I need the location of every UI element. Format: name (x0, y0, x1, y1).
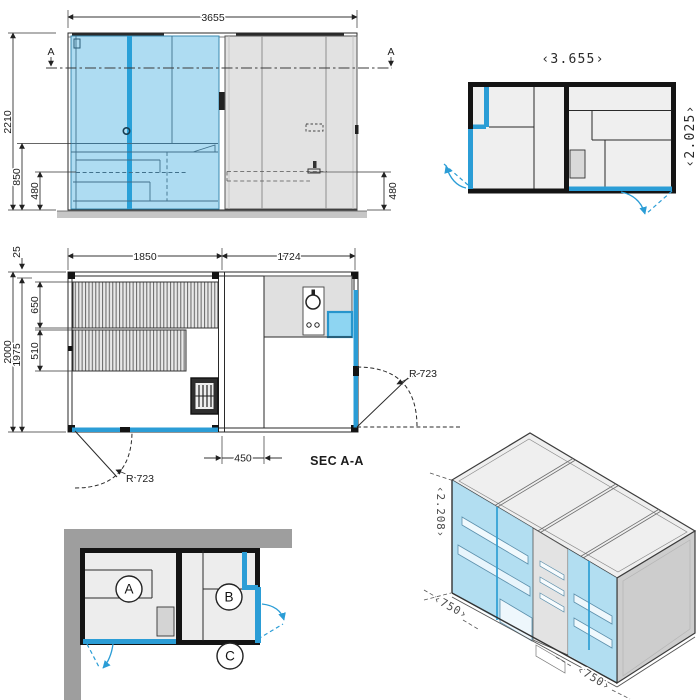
dim-screen-offset: 450 (234, 453, 252, 465)
room-c-label: C (225, 649, 235, 664)
dim-total-height: 2210 (2, 110, 14, 134)
dim-shower-width: 1724 (277, 251, 301, 263)
dim-inner-depth: 1975 (11, 343, 23, 367)
dim-lower-bench: 510 (29, 342, 41, 360)
vanity-counter (264, 276, 352, 337)
section-marker-right: A (387, 46, 394, 58)
technical-drawing-sheet: A A 3655 2210 850 480 480 ‹3.655 (0, 0, 700, 700)
glass-door-stile (127, 36, 132, 209)
dim-plan-width: ‹3.655› (541, 52, 604, 67)
door-swing-right-icon (621, 191, 672, 214)
dim-door-radius-left: R 723 (126, 473, 154, 485)
glass-strip-room-b (242, 552, 247, 589)
panel-handle (355, 125, 359, 134)
washbasin (306, 295, 320, 309)
shower-tray (570, 150, 585, 178)
glass-wall-bottom (569, 187, 672, 192)
top-plan-view: ‹3.655› ‹2.025› (444, 52, 698, 214)
dim-step-height-right: 480 (387, 182, 399, 200)
glass-partition-strip (484, 87, 489, 127)
upper-bench (73, 282, 218, 328)
room-b-label: B (224, 590, 233, 605)
isometric-view: ‹2.208› ‹750› ‹750› (424, 433, 695, 699)
elevation-panel-side (225, 36, 359, 209)
glass-wall-room-b (255, 587, 261, 643)
heater-plan (157, 607, 174, 636)
dim-upper-bench: 650 (29, 296, 41, 314)
sauna-glass-front (72, 428, 218, 433)
shower-mixer (313, 161, 317, 168)
ground-strip (57, 211, 367, 218)
location-plan-view: A B C (64, 529, 292, 700)
sauna-door: R 723 (75, 431, 154, 488)
shower-bench (328, 312, 352, 337)
door-swing-left-icon (444, 164, 468, 188)
section-left-dimensions: 2000 1975 25 650 510 (2, 246, 73, 432)
glass-front-room-a (83, 639, 176, 644)
section-plan-view: 1850 1724 (2, 246, 462, 488)
front-elevation-view: A A 3655 2210 850 480 480 (2, 10, 399, 218)
sauna-heater (191, 378, 218, 414)
shower-door: R 723 (357, 367, 462, 427)
building-wall-left (64, 529, 81, 700)
elevation-glass-front (71, 36, 219, 209)
building-wall-top (64, 529, 292, 548)
dim-step-height-left: 480 (29, 182, 41, 200)
dim-top-offset: 25 (11, 246, 23, 258)
dim-iso-height: ‹2.208› (434, 486, 447, 538)
glass-wall-left (468, 129, 473, 189)
dim-plan-depth: ‹2.025› (683, 104, 698, 167)
junction-connector (219, 92, 225, 110)
drawing-canvas: A A 3655 2210 850 480 480 ‹3.655 (0, 0, 700, 700)
screen-dimension: 450 (204, 436, 282, 465)
dim-sauna-width: 1850 (133, 251, 157, 263)
section-marker-left: A (47, 46, 54, 58)
dim-total-width: 3655 (201, 12, 225, 24)
door-swing-room-a-icon (87, 644, 113, 668)
dim-door-radius-right: R 723 (409, 368, 437, 380)
dim-bench-height: 850 (11, 168, 23, 186)
shower-glass-wall (354, 290, 359, 428)
section-title: SEC A-A (310, 454, 364, 468)
door-swing-room-b-icon (258, 604, 284, 639)
room-a-label: A (124, 582, 133, 597)
lower-bench (73, 330, 186, 371)
